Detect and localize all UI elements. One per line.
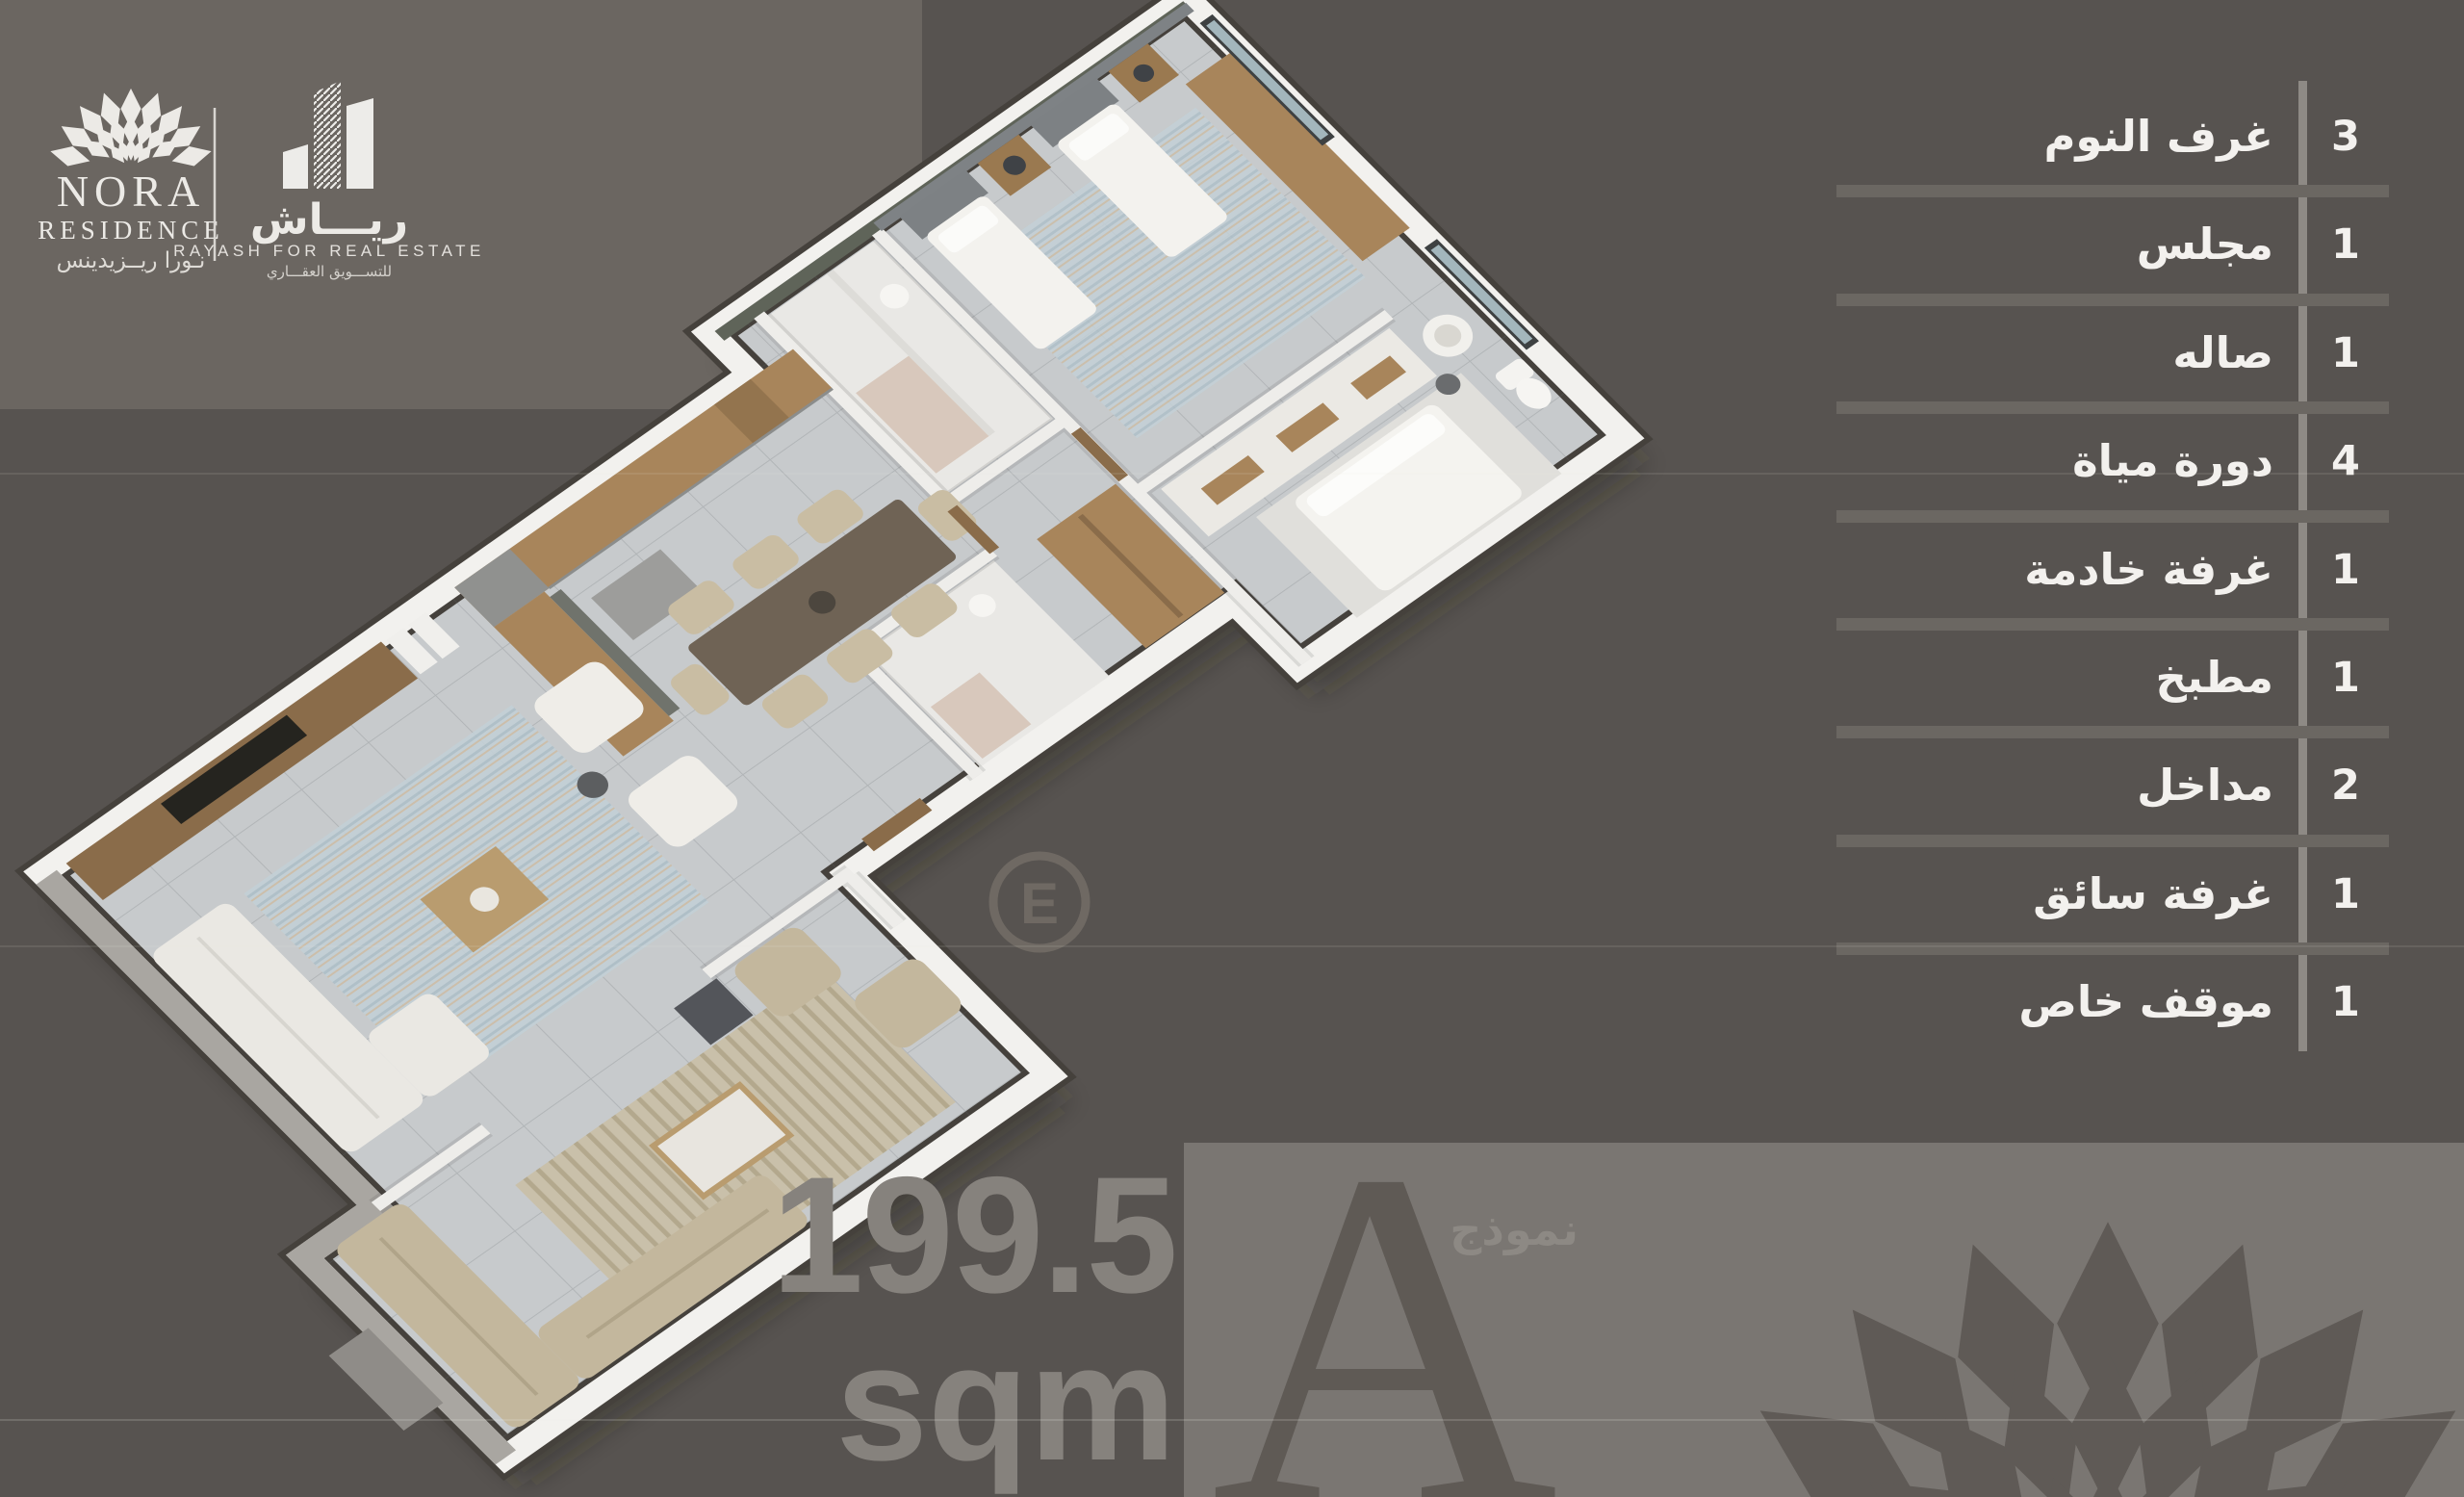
room-count: 2 (2311, 732, 2380, 839)
room-label: صاله (2172, 299, 2273, 407)
room-label: موقف خاص (2018, 948, 2273, 1056)
room-count: 1 (2311, 948, 2380, 1056)
area-unit: sqm (599, 1330, 1176, 1475)
scanline (0, 473, 2464, 475)
room-count: 1 (2311, 191, 2380, 298)
list-divider (1836, 510, 2389, 523)
poster-canvas: E NORA RESIDENC (0, 0, 2464, 1497)
rayash-buildings-icon (283, 81, 373, 189)
room-count: 1 (2311, 840, 2380, 948)
room-label: دورة مياة (2072, 407, 2273, 515)
scanline (0, 945, 2464, 947)
list-divider (1836, 726, 2389, 738)
room-label: غرف النوم (2043, 83, 2273, 191)
rayash-wordmark: ريـــاش (250, 195, 408, 245)
model-letter: A (1211, 1097, 1543, 1497)
list-divider (1836, 294, 2389, 306)
nora-title: NORA (57, 167, 205, 216)
room-label: غرفة خادمة (2024, 516, 2273, 624)
list-divider (1836, 401, 2389, 414)
scanline (0, 1419, 2464, 1421)
list-divider (1836, 835, 2389, 847)
list-divider (1836, 185, 2389, 197)
list-divider (1836, 618, 2389, 631)
area-value: 199.5 (599, 1163, 1176, 1307)
model-label: نموذج (1450, 1203, 1578, 1255)
list-vertical-rule (2298, 81, 2307, 1051)
room-label: مداخل (2137, 732, 2273, 839)
brand-header: NORA RESIDENCE نـورا ريــزيدينس ريـــاش … (0, 0, 922, 409)
rayash-arabic-sub: للتســـويق العقـــاري (267, 263, 392, 281)
nora-subtitle: RESIDENCE (38, 216, 224, 245)
room-count: 4 (2311, 407, 2380, 515)
list-divider (1836, 942, 2389, 955)
compass-badge: E (993, 856, 1086, 948)
room-count: 1 (2311, 516, 2380, 624)
compass-letter: E (1020, 871, 1059, 936)
rayash-latin: RAYASH FOR REAL ESTATE (173, 242, 485, 260)
room-count: 1 (2311, 299, 2380, 407)
room-count: 1 (2311, 624, 2380, 732)
room-label: مجلس (2137, 191, 2273, 298)
nora-lotus-icon (48, 89, 214, 171)
room-count: 3 (2311, 83, 2380, 191)
room-label: غرفة سائق (2033, 840, 2273, 948)
room-label: مطبخ (2156, 624, 2274, 732)
